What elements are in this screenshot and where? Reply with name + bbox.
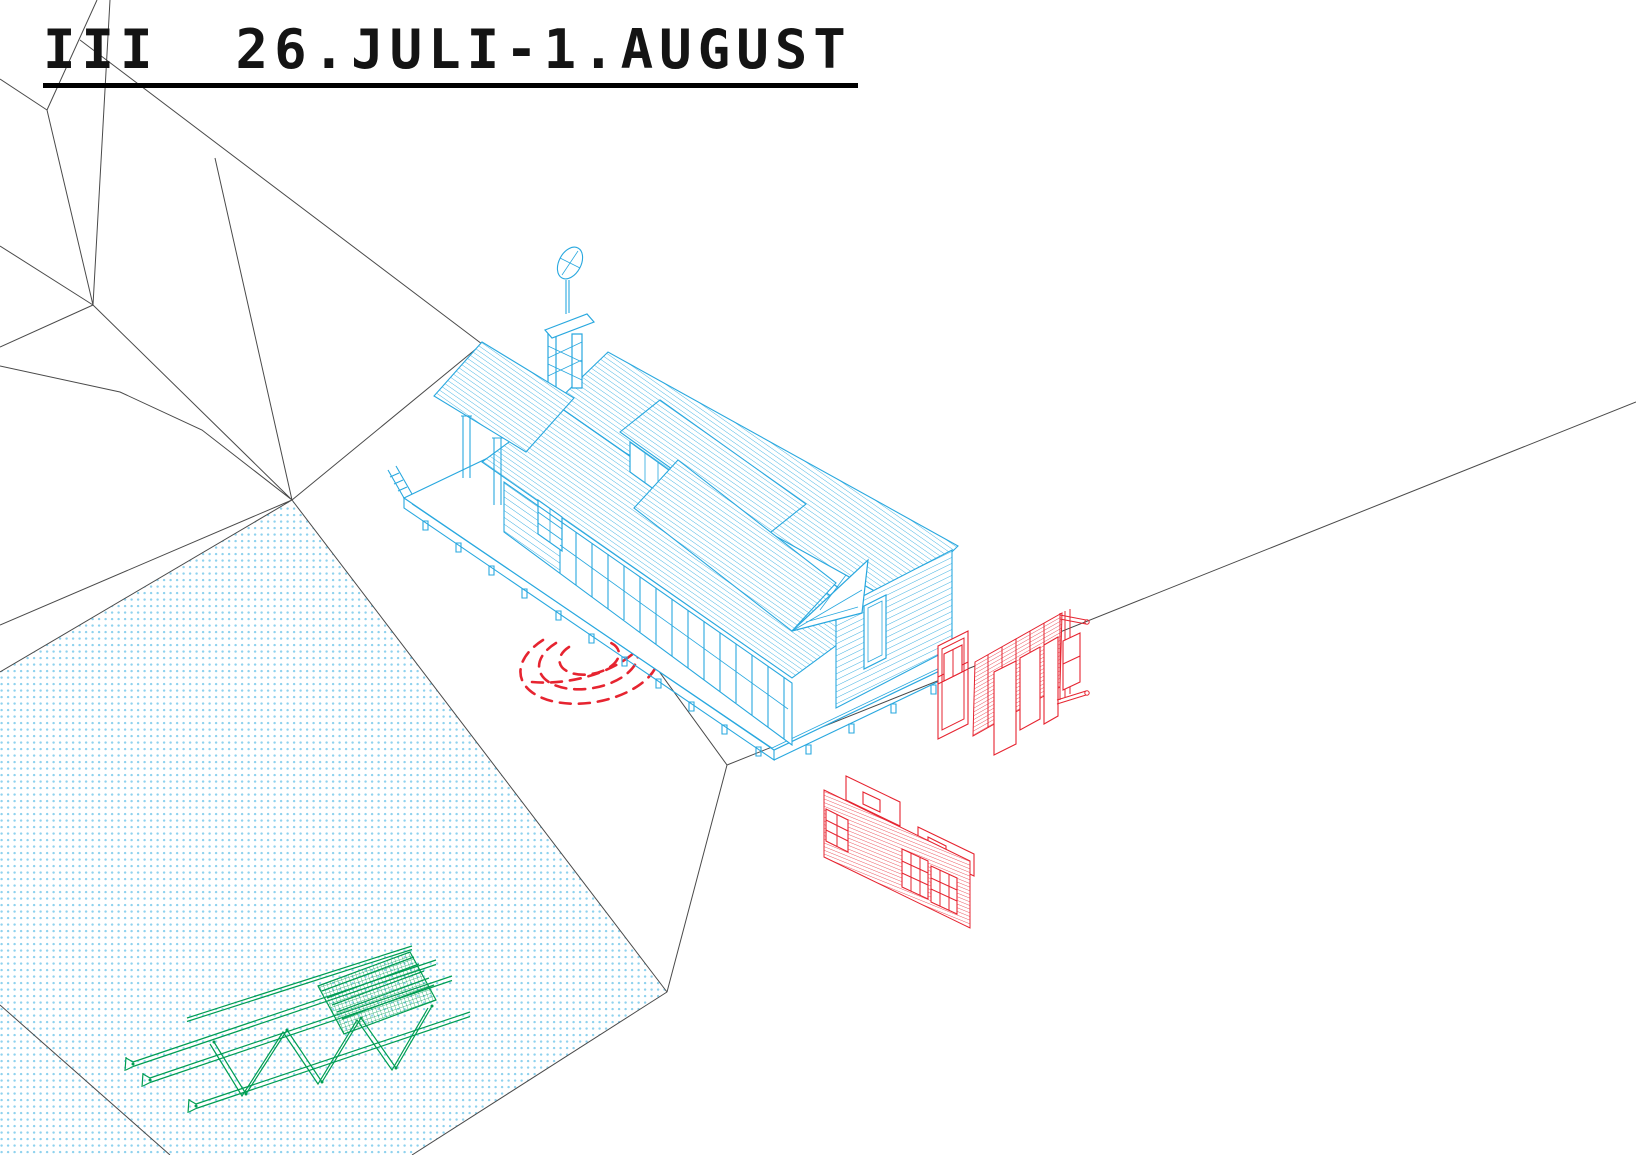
diagram-page: III 26.JULI-1.AUGUST xyxy=(0,0,1636,1155)
wall-panel-lower xyxy=(824,776,974,928)
turbine-pole xyxy=(566,280,569,314)
page-title: III 26.JULI-1.AUGUST xyxy=(43,22,858,88)
wall-panel-upper xyxy=(938,609,1089,755)
cabin-drawing xyxy=(388,243,958,760)
turbine-platform xyxy=(545,314,594,338)
se-door xyxy=(864,595,886,669)
deck-ladder xyxy=(388,466,412,498)
hanging-window-frame xyxy=(938,631,968,739)
axonometric-diagram xyxy=(0,0,1636,1155)
turbine-rotor-icon xyxy=(552,243,587,283)
